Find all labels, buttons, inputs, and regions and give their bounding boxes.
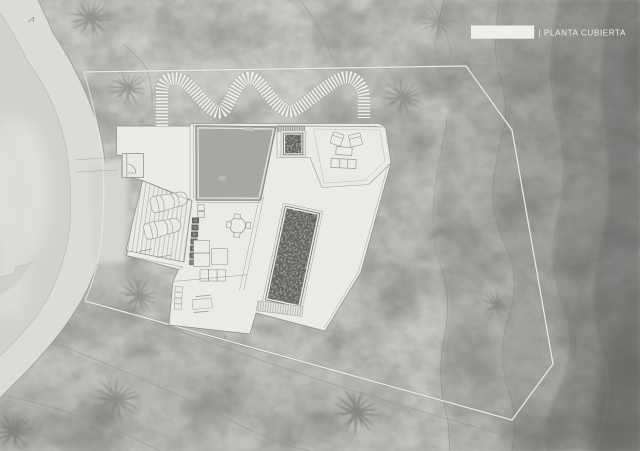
svg-text:| PLANTA CUBIERTA: | PLANTA CUBIERTA (539, 28, 626, 37)
